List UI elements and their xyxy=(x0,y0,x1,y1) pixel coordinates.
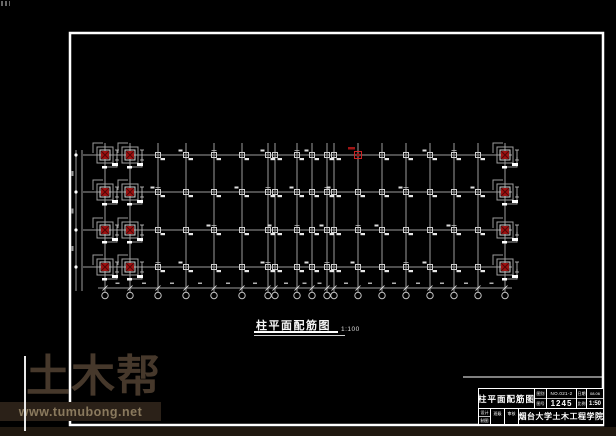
dim-text-mark xyxy=(72,246,74,251)
dim-text-mark xyxy=(368,283,372,285)
column-label xyxy=(361,270,366,272)
column-label xyxy=(127,166,132,169)
label-date: 日期 xyxy=(577,389,586,399)
axis-bubble xyxy=(183,292,189,298)
column-label xyxy=(300,195,305,197)
dim-text-mark xyxy=(142,283,146,285)
watermark-url: www.tumubong.net xyxy=(19,405,143,419)
plan-title-underline-thin xyxy=(254,335,345,336)
field-labels-1: 图别 图号 xyxy=(535,389,547,408)
column-label xyxy=(290,187,294,189)
column-label xyxy=(102,166,107,169)
column-label xyxy=(315,270,320,272)
date-value: 08.06 xyxy=(587,389,603,399)
column-label xyxy=(481,158,486,160)
column-label xyxy=(245,158,250,160)
column-label xyxy=(512,238,518,241)
axis-bubble xyxy=(324,292,330,298)
column-label xyxy=(112,275,118,278)
column-label xyxy=(102,203,107,206)
label-drafter: 制图 xyxy=(479,417,490,424)
column-label xyxy=(337,195,342,197)
field-labels-2: 日期 比例 xyxy=(577,389,587,408)
axis-bubble xyxy=(403,292,409,298)
column-label xyxy=(471,187,475,189)
column-label xyxy=(330,195,335,197)
column-label xyxy=(351,262,355,264)
column-label xyxy=(102,278,107,281)
axis-bubble xyxy=(265,292,271,298)
axis-bubble xyxy=(475,292,481,298)
column-label xyxy=(127,203,132,206)
column-label xyxy=(330,158,335,160)
column-label xyxy=(457,158,462,160)
axis-bubble xyxy=(127,292,133,298)
axis-bubble xyxy=(211,292,217,298)
column-label xyxy=(305,150,309,152)
column-label xyxy=(278,158,283,160)
column-label xyxy=(179,262,183,264)
dim-text-mark xyxy=(303,283,307,285)
column-label xyxy=(300,270,305,272)
column-label xyxy=(127,278,132,281)
field-values-2: 08.06 1:50 xyxy=(587,389,603,408)
dim-tick-dot xyxy=(74,265,77,268)
dim-text-mark xyxy=(344,283,348,285)
column-label xyxy=(261,150,265,152)
axis-bubble xyxy=(102,292,108,298)
column-label xyxy=(161,158,166,160)
column-label xyxy=(409,233,414,235)
column-label xyxy=(423,262,427,264)
column-label xyxy=(278,270,283,272)
column-label xyxy=(502,278,507,281)
column-label xyxy=(189,158,194,160)
dim-text-mark xyxy=(116,283,120,285)
column-label xyxy=(102,241,107,244)
column-label xyxy=(278,195,283,197)
column-label xyxy=(189,270,194,272)
column-label xyxy=(137,275,143,278)
column-label xyxy=(315,158,320,160)
column-label xyxy=(457,270,462,272)
sheet-type-value: NO.021-2 xyxy=(547,389,576,399)
column-label xyxy=(385,270,390,272)
column-label xyxy=(189,195,194,197)
checker-cell: 审核 xyxy=(505,409,519,424)
column-label xyxy=(327,187,331,189)
column-label xyxy=(512,275,518,278)
column-label xyxy=(245,233,250,235)
axis-bubble xyxy=(427,292,433,298)
column-label xyxy=(245,195,250,197)
column-label xyxy=(433,270,438,272)
column-label xyxy=(409,195,414,197)
column-label xyxy=(271,233,276,235)
label-sheet-no: 图号 xyxy=(535,399,546,408)
dim-text-mark xyxy=(284,283,288,285)
column-label xyxy=(261,262,265,264)
column-label xyxy=(112,163,118,166)
field-values-1: NO.021-2 1245 xyxy=(547,389,577,408)
column-label xyxy=(502,241,507,244)
dim-tick-dot xyxy=(74,190,77,193)
scale-value: 1:50 xyxy=(587,399,603,408)
column-label xyxy=(127,241,132,244)
column-label xyxy=(278,233,283,235)
column-label xyxy=(305,262,309,264)
dim-text-mark xyxy=(464,283,468,285)
column-label xyxy=(361,195,366,197)
axis-bubble xyxy=(309,292,315,298)
axis-bubble xyxy=(331,292,337,298)
column-label xyxy=(330,270,335,272)
axis-bubble xyxy=(294,292,300,298)
watermark-bottom-strip xyxy=(0,427,616,436)
title-block-row2: 设计 制图 班级 审核 烟台大学土木工程学院 xyxy=(479,409,603,424)
column-label xyxy=(512,163,518,166)
column-label xyxy=(137,200,143,203)
column-label xyxy=(433,158,438,160)
dim-tick-dot xyxy=(74,153,77,156)
column-label xyxy=(112,200,118,203)
axis-bubble xyxy=(379,292,385,298)
column-label xyxy=(300,158,305,160)
column-label xyxy=(481,233,486,235)
column-label xyxy=(112,238,118,241)
column-label xyxy=(161,195,166,197)
axis-bubble xyxy=(502,292,508,298)
column-label xyxy=(375,225,379,227)
column-label xyxy=(457,195,462,197)
dim-text-mark xyxy=(440,283,444,285)
column-label xyxy=(457,233,462,235)
column-label xyxy=(409,158,414,160)
label-sheet-type: 图别 xyxy=(535,389,546,399)
column-label xyxy=(217,158,222,160)
dim-text-mark xyxy=(72,171,74,176)
column-label xyxy=(433,195,438,197)
label-scale: 比例 xyxy=(577,399,586,408)
column-label xyxy=(217,233,222,235)
column-label xyxy=(337,158,342,160)
column-label xyxy=(271,270,276,272)
column-label xyxy=(217,270,222,272)
plan-scale: 1:100 xyxy=(341,326,360,333)
dim-text-mark xyxy=(198,283,202,285)
column-label xyxy=(481,270,486,272)
column-label xyxy=(385,233,390,235)
axis-bubble xyxy=(355,292,361,298)
cad-screenshot: 柱平面配筋图 1:100 柱平面配筋图 图别 图号 NO.021-2 1245 … xyxy=(0,0,616,436)
corner-artifact-mark xyxy=(1,1,10,6)
column-label xyxy=(268,225,272,227)
plan-title-underline xyxy=(254,331,338,333)
column-label xyxy=(399,187,403,189)
column-label xyxy=(481,195,486,197)
axis-bubble xyxy=(451,292,457,298)
axis-bubble xyxy=(272,292,278,298)
dim-text-mark xyxy=(392,283,396,285)
column-label xyxy=(385,158,390,160)
column-label xyxy=(337,233,342,235)
column-label xyxy=(385,195,390,197)
column-label xyxy=(447,225,451,227)
red-column-small-fill xyxy=(357,154,360,157)
dim-text-mark xyxy=(416,283,420,285)
column-label xyxy=(330,233,335,235)
title-block: 柱平面配筋图 图别 图号 NO.021-2 1245 日期 比例 08.06 1… xyxy=(478,388,604,425)
watermark-logo-text: 土木帮 xyxy=(26,354,161,400)
role-labels: 设计 制图 xyxy=(479,409,491,424)
drawing-name: 柱平面配筋图 xyxy=(479,389,535,408)
title-block-row1: 柱平面配筋图 图别 图号 NO.021-2 1245 日期 比例 08.06 1… xyxy=(479,389,603,409)
column-label xyxy=(512,200,518,203)
column-label xyxy=(271,158,276,160)
axis-bubble xyxy=(155,292,161,298)
column-label xyxy=(179,150,183,152)
sheet-number-value: 1245 xyxy=(547,399,576,408)
red-annotation xyxy=(348,147,355,150)
column-label xyxy=(161,270,166,272)
column-label xyxy=(423,150,427,152)
column-label xyxy=(189,233,194,235)
column-label xyxy=(235,187,239,189)
column-label xyxy=(433,233,438,235)
column-label xyxy=(320,225,324,227)
column-label xyxy=(409,270,414,272)
watermark-divider-line xyxy=(24,356,26,431)
dim-text-mark xyxy=(170,283,174,285)
column-label xyxy=(161,233,166,235)
column-label xyxy=(271,195,276,197)
dim-text-mark xyxy=(253,283,257,285)
column-label xyxy=(151,187,155,189)
dim-text-mark xyxy=(72,209,74,214)
column-label xyxy=(137,238,143,241)
column-label xyxy=(502,166,507,169)
dim-tick-dot xyxy=(74,228,77,231)
label-designer: 设计 xyxy=(479,409,490,417)
column-label xyxy=(300,233,305,235)
column-label xyxy=(315,233,320,235)
organization-name: 烟台大学土木工程学院 xyxy=(519,409,603,424)
dim-text-mark xyxy=(318,283,322,285)
dim-text-mark xyxy=(226,283,230,285)
column-label xyxy=(217,195,222,197)
column-label xyxy=(337,270,342,272)
column-label xyxy=(245,270,250,272)
dim-text-mark xyxy=(490,283,494,285)
column-label xyxy=(207,225,211,227)
column-label xyxy=(315,195,320,197)
class-cell: 班级 xyxy=(491,409,505,424)
axis-bubble xyxy=(239,292,245,298)
column-label xyxy=(137,163,143,166)
column-label xyxy=(361,233,366,235)
column-label xyxy=(502,203,507,206)
